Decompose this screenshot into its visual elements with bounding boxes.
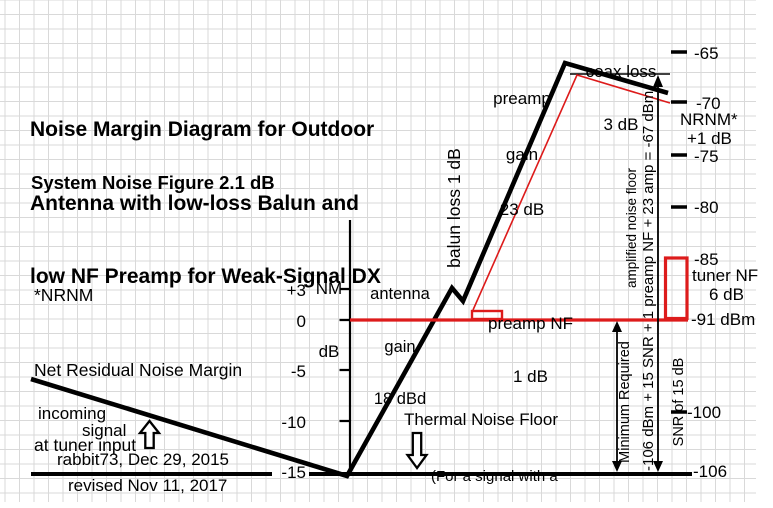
dbm-tick-minus75: -75 (694, 147, 719, 167)
dbm-tick-minus91: -91 dBm (691, 310, 755, 330)
nrnm-value-label-line2: +1 dB (687, 129, 732, 149)
nm-axis-unit-line2: dB (312, 341, 346, 362)
nm-axis-unit-line1: NM (312, 278, 346, 299)
dbm-tick-minus65: -65 (694, 44, 719, 64)
antenna-gain-line2: gain (354, 339, 446, 357)
system-noise-figure-label: System Noise Figure 2.1 dB (31, 172, 275, 193)
preamp-nf-label: preamp NF 1 dB (483, 280, 578, 420)
nm-tick-minus5: -5 (268, 362, 306, 382)
title-line1: Noise Margin Diagram for Outdoor (30, 118, 381, 143)
thermal-sub-line1: (For a signal with a (431, 468, 569, 486)
nm-tick-0: 0 (268, 312, 306, 332)
snr-arrow-up-icon (612, 321, 622, 332)
balun-loss-label: balun loss 1 dB (444, 138, 464, 278)
min-snr-line2: SNR of 15 dB (670, 334, 688, 470)
tuner-nf-label-line1: tuner NF (692, 266, 758, 286)
preamp-gain-label: preamp gain 23 dB (477, 53, 567, 257)
tuner-nf-box (666, 258, 688, 319)
coax-loss-line1: coax loss (576, 63, 666, 81)
credit-author-date: rabbit73, Dec 29, 2015 (57, 450, 229, 470)
minimum-required-snr-label: Minimum Required SNR of 15 dB (580, 334, 616, 470)
preamp-nf-line2: 1 dB (483, 368, 578, 386)
note-line2: Net Residual Noise Margin (34, 358, 242, 383)
noise-margin-diagram: Noise Margin Diagram for Outdoor Antenna… (0, 0, 773, 508)
title-line2: Antenna with low-loss Balun and (30, 192, 381, 217)
preamp-gain-line2: gain (477, 146, 567, 165)
note-line1: *NRNM (34, 283, 242, 308)
antenna-gain-line3: 18 dBd (354, 391, 446, 409)
preamp-nf-line1: preamp NF (483, 315, 578, 333)
nm-tick-plus3: +3 (268, 281, 306, 301)
nrnm-value-label-line1: NRNM* (680, 110, 738, 130)
tuner-nf-label-line2: 6 dB (709, 285, 744, 305)
min-snr-line1: Minimum Required (616, 334, 634, 470)
incoming-signal-label-line2: signal (82, 421, 126, 441)
nm-axis-unit-label: NM dB (312, 236, 346, 404)
preamp-gain-line1: preamp (477, 90, 567, 109)
antenna-gain-line1: antenna (354, 286, 446, 304)
credit-revision-date: revised Nov 11, 2017 (68, 476, 227, 496)
thermal-noise-floor-title: Thermal Noise Floor (404, 410, 558, 430)
nm-tick-minus10: -10 (268, 413, 306, 433)
nm-tick-minus15: -15 (268, 463, 306, 483)
preamp-gain-line3: 23 dB (477, 201, 567, 220)
dbm-tick-minus80: -80 (694, 198, 719, 218)
thermal-noise-floor-subtext: (For a signal with a bandwidth of 6 MHz) (431, 432, 569, 508)
amplified-noise-floor-label: amplified noise floor (624, 166, 640, 290)
noise-floor-formula-label: -106 dBm + 15 SNR + 1 preamp NF + 23 amp… (640, 121, 656, 471)
